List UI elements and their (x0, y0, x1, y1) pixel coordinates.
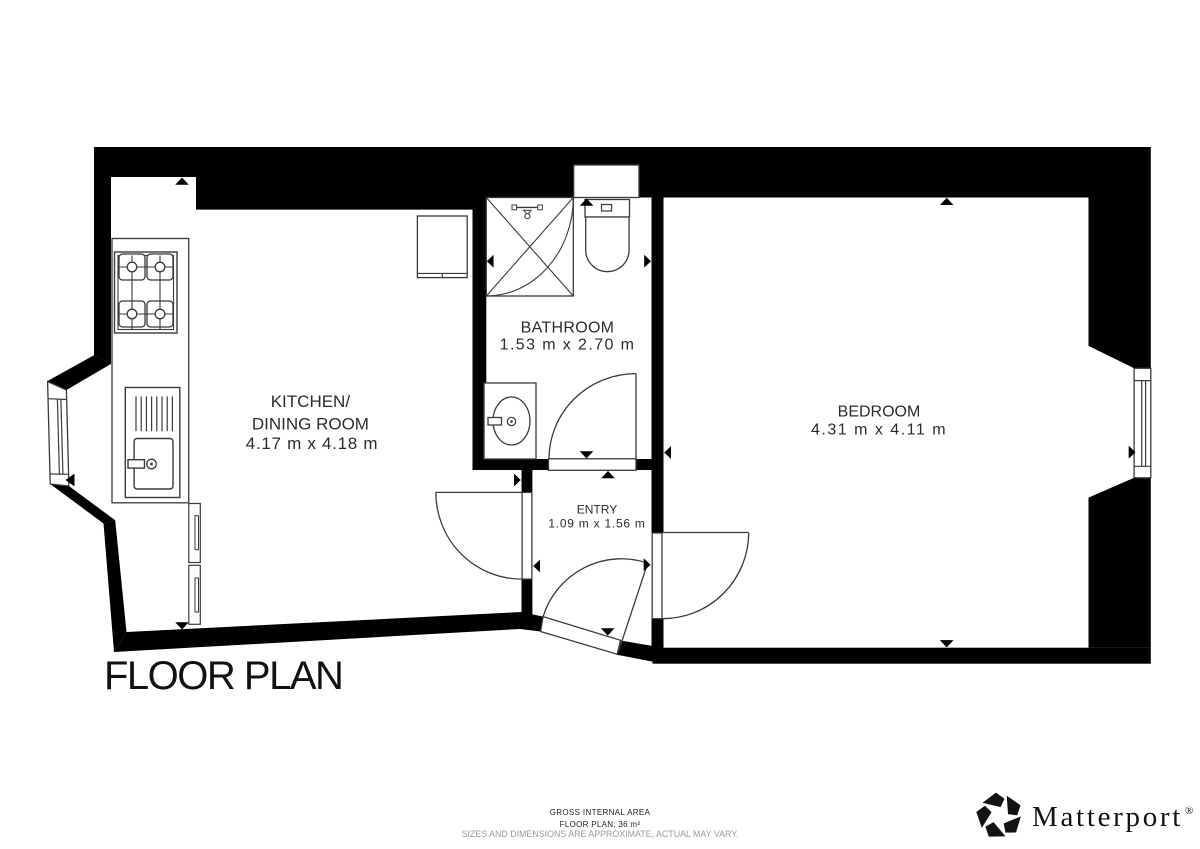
svg-text:GROSS INTERNAL AREA: GROSS INTERNAL AREA (550, 808, 651, 817)
svg-text:FLOOR PLAN: FLOOR PLAN (104, 654, 342, 698)
svg-text:Matterport: Matterport (1032, 801, 1183, 833)
svg-text:4.17 m x 4.18 m: 4.17 m x 4.18 m (246, 434, 378, 453)
svg-text:1.09 m x 1.56 m: 1.09 m x 1.56 m (548, 517, 645, 531)
svg-text:®: ® (1185, 805, 1193, 817)
svg-text:KITCHEN/: KITCHEN/ (271, 392, 351, 411)
svg-text:BEDROOM: BEDROOM (838, 404, 921, 421)
svg-text:FLOOR PLAN: 36 m²: FLOOR PLAN: 36 m² (560, 820, 641, 829)
svg-text:DINING ROOM: DINING ROOM (252, 415, 369, 434)
svg-text:ENTRY: ENTRY (577, 503, 617, 517)
svg-text:SIZES AND DIMENSIONS ARE APPRO: SIZES AND DIMENSIONS ARE APPROXIMATE, AC… (462, 829, 739, 839)
svg-text:4.31 m x 4.11 m: 4.31 m x 4.11 m (811, 422, 947, 439)
svg-text:BATHROOM: BATHROOM (521, 320, 615, 337)
svg-text:1.53 m x 2.70 m: 1.53 m x 2.70 m (500, 337, 636, 354)
